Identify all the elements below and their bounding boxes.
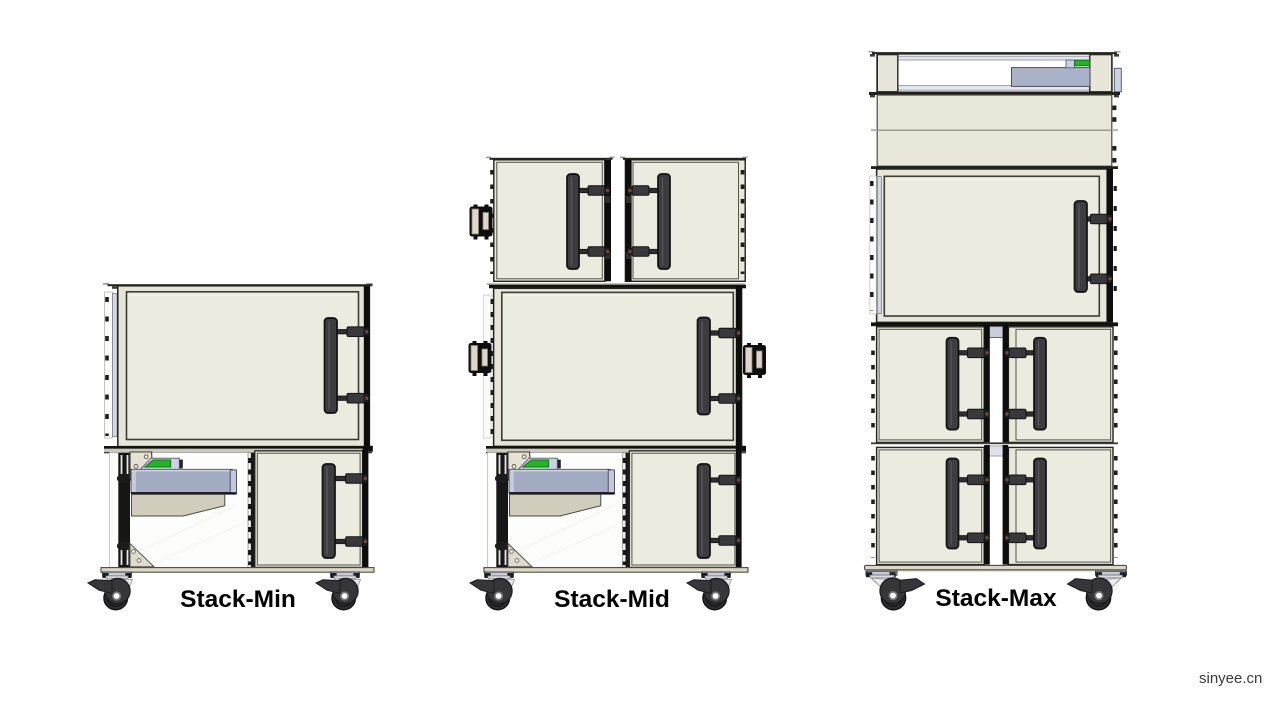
- svg-text:Stack-Min: Stack-Min: [180, 586, 296, 613]
- svg-text:Stack-Max: Stack-Max: [935, 585, 1057, 612]
- svg-text:Stack-Mid: Stack-Mid: [554, 586, 670, 613]
- svg-text:sinyee.cn: sinyee.cn: [1199, 670, 1262, 687]
